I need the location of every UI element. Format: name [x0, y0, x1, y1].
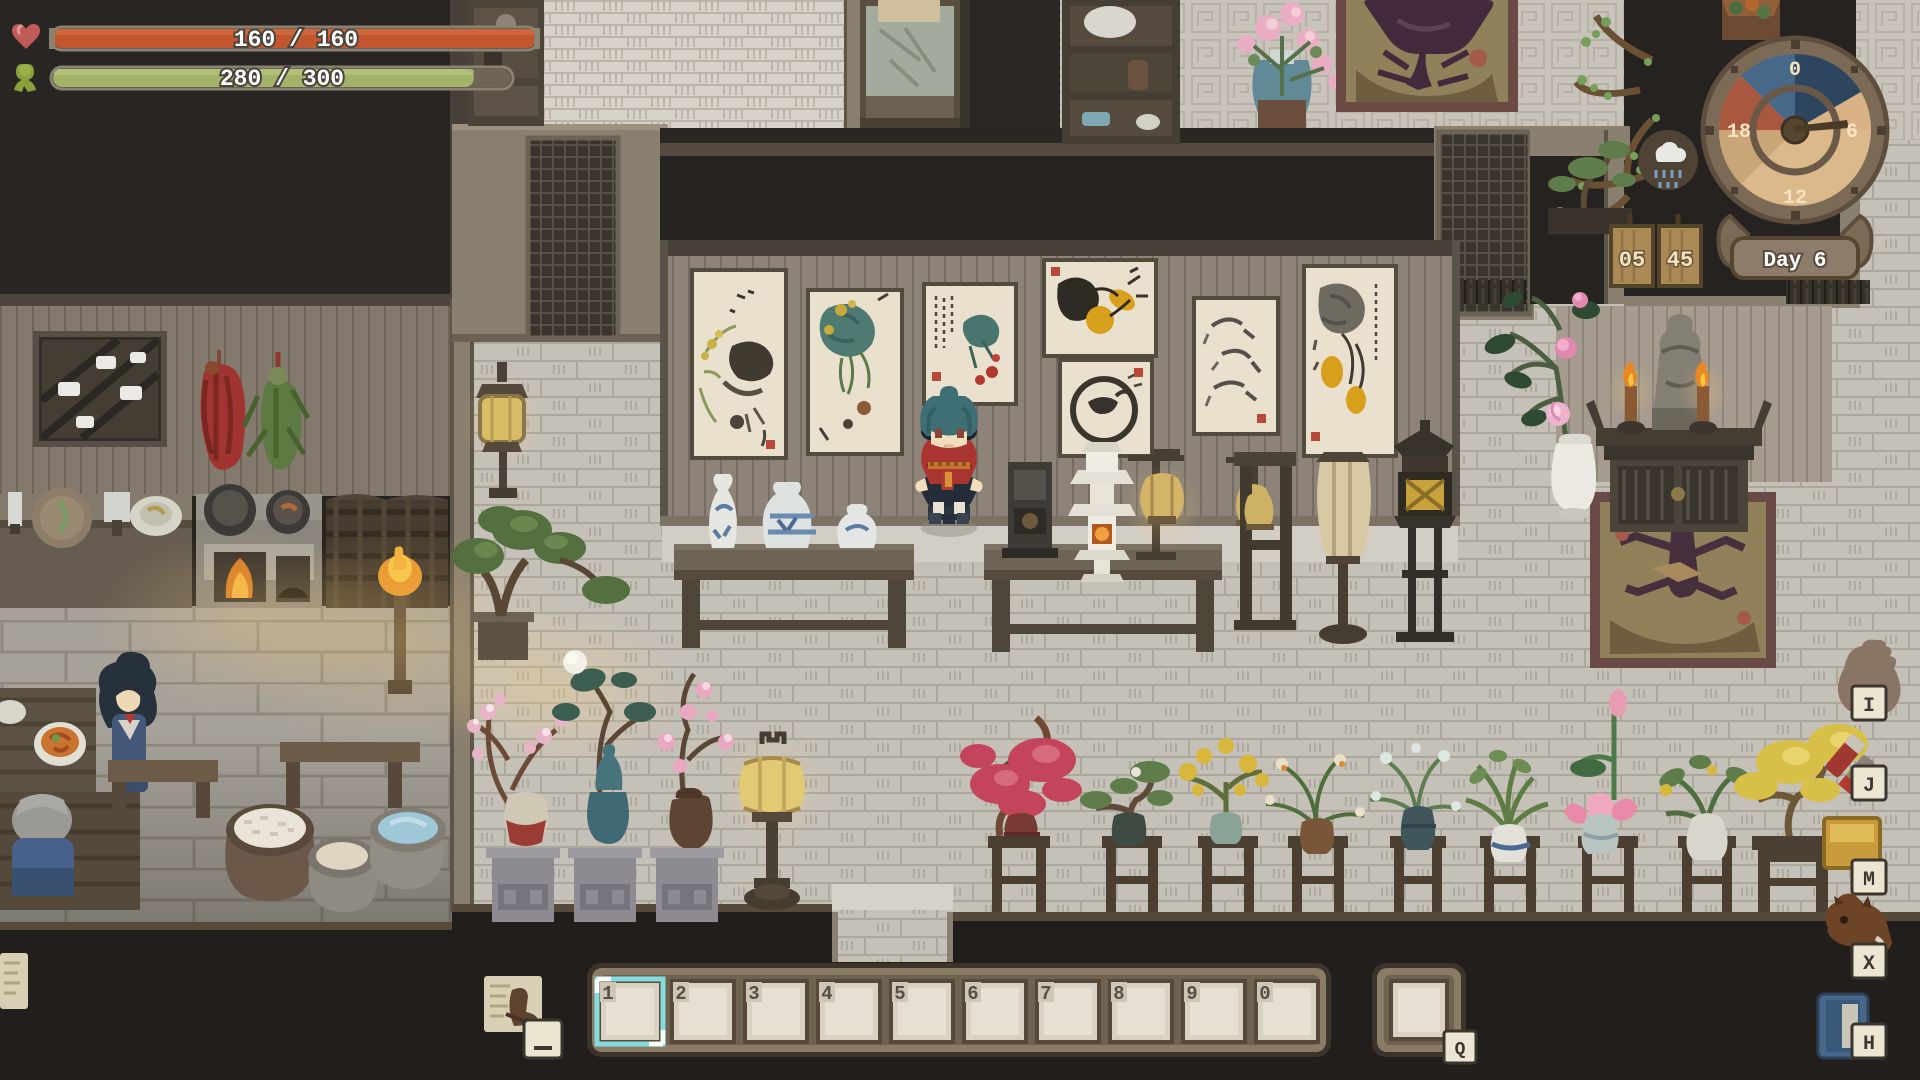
svg-text:1: 1 [602, 983, 613, 1005]
svg-text:4: 4 [821, 983, 832, 1005]
svg-text:X: X [1863, 953, 1875, 976]
svg-text:9: 9 [1186, 983, 1197, 1005]
svg-text:7: 7 [1040, 983, 1051, 1005]
svg-text:8: 8 [1113, 983, 1124, 1005]
svg-text:3: 3 [748, 983, 759, 1005]
svg-text:2: 2 [675, 983, 686, 1005]
svg-text:Q: Q [1455, 1040, 1466, 1060]
svg-text:05: 05 [1619, 248, 1645, 273]
svg-text:6: 6 [1846, 121, 1858, 144]
svg-text:Day 6: Day 6 [1763, 250, 1826, 273]
svg-text:H: H [1863, 1033, 1875, 1056]
svg-text:12: 12 [1783, 187, 1807, 210]
svg-text:6: 6 [967, 983, 978, 1005]
svg-text:45: 45 [1667, 248, 1693, 273]
svg-text:J: J [1863, 775, 1875, 798]
svg-text:280 / 300: 280 / 300 [220, 66, 344, 92]
svg-text:0: 0 [1789, 59, 1801, 82]
svg-text:5: 5 [894, 983, 905, 1005]
svg-text:0: 0 [1259, 983, 1270, 1005]
svg-text:M: M [1863, 869, 1875, 892]
svg-text:18: 18 [1727, 121, 1751, 144]
svg-text:I: I [1863, 695, 1875, 718]
svg-text:160 / 160: 160 / 160 [234, 27, 358, 53]
